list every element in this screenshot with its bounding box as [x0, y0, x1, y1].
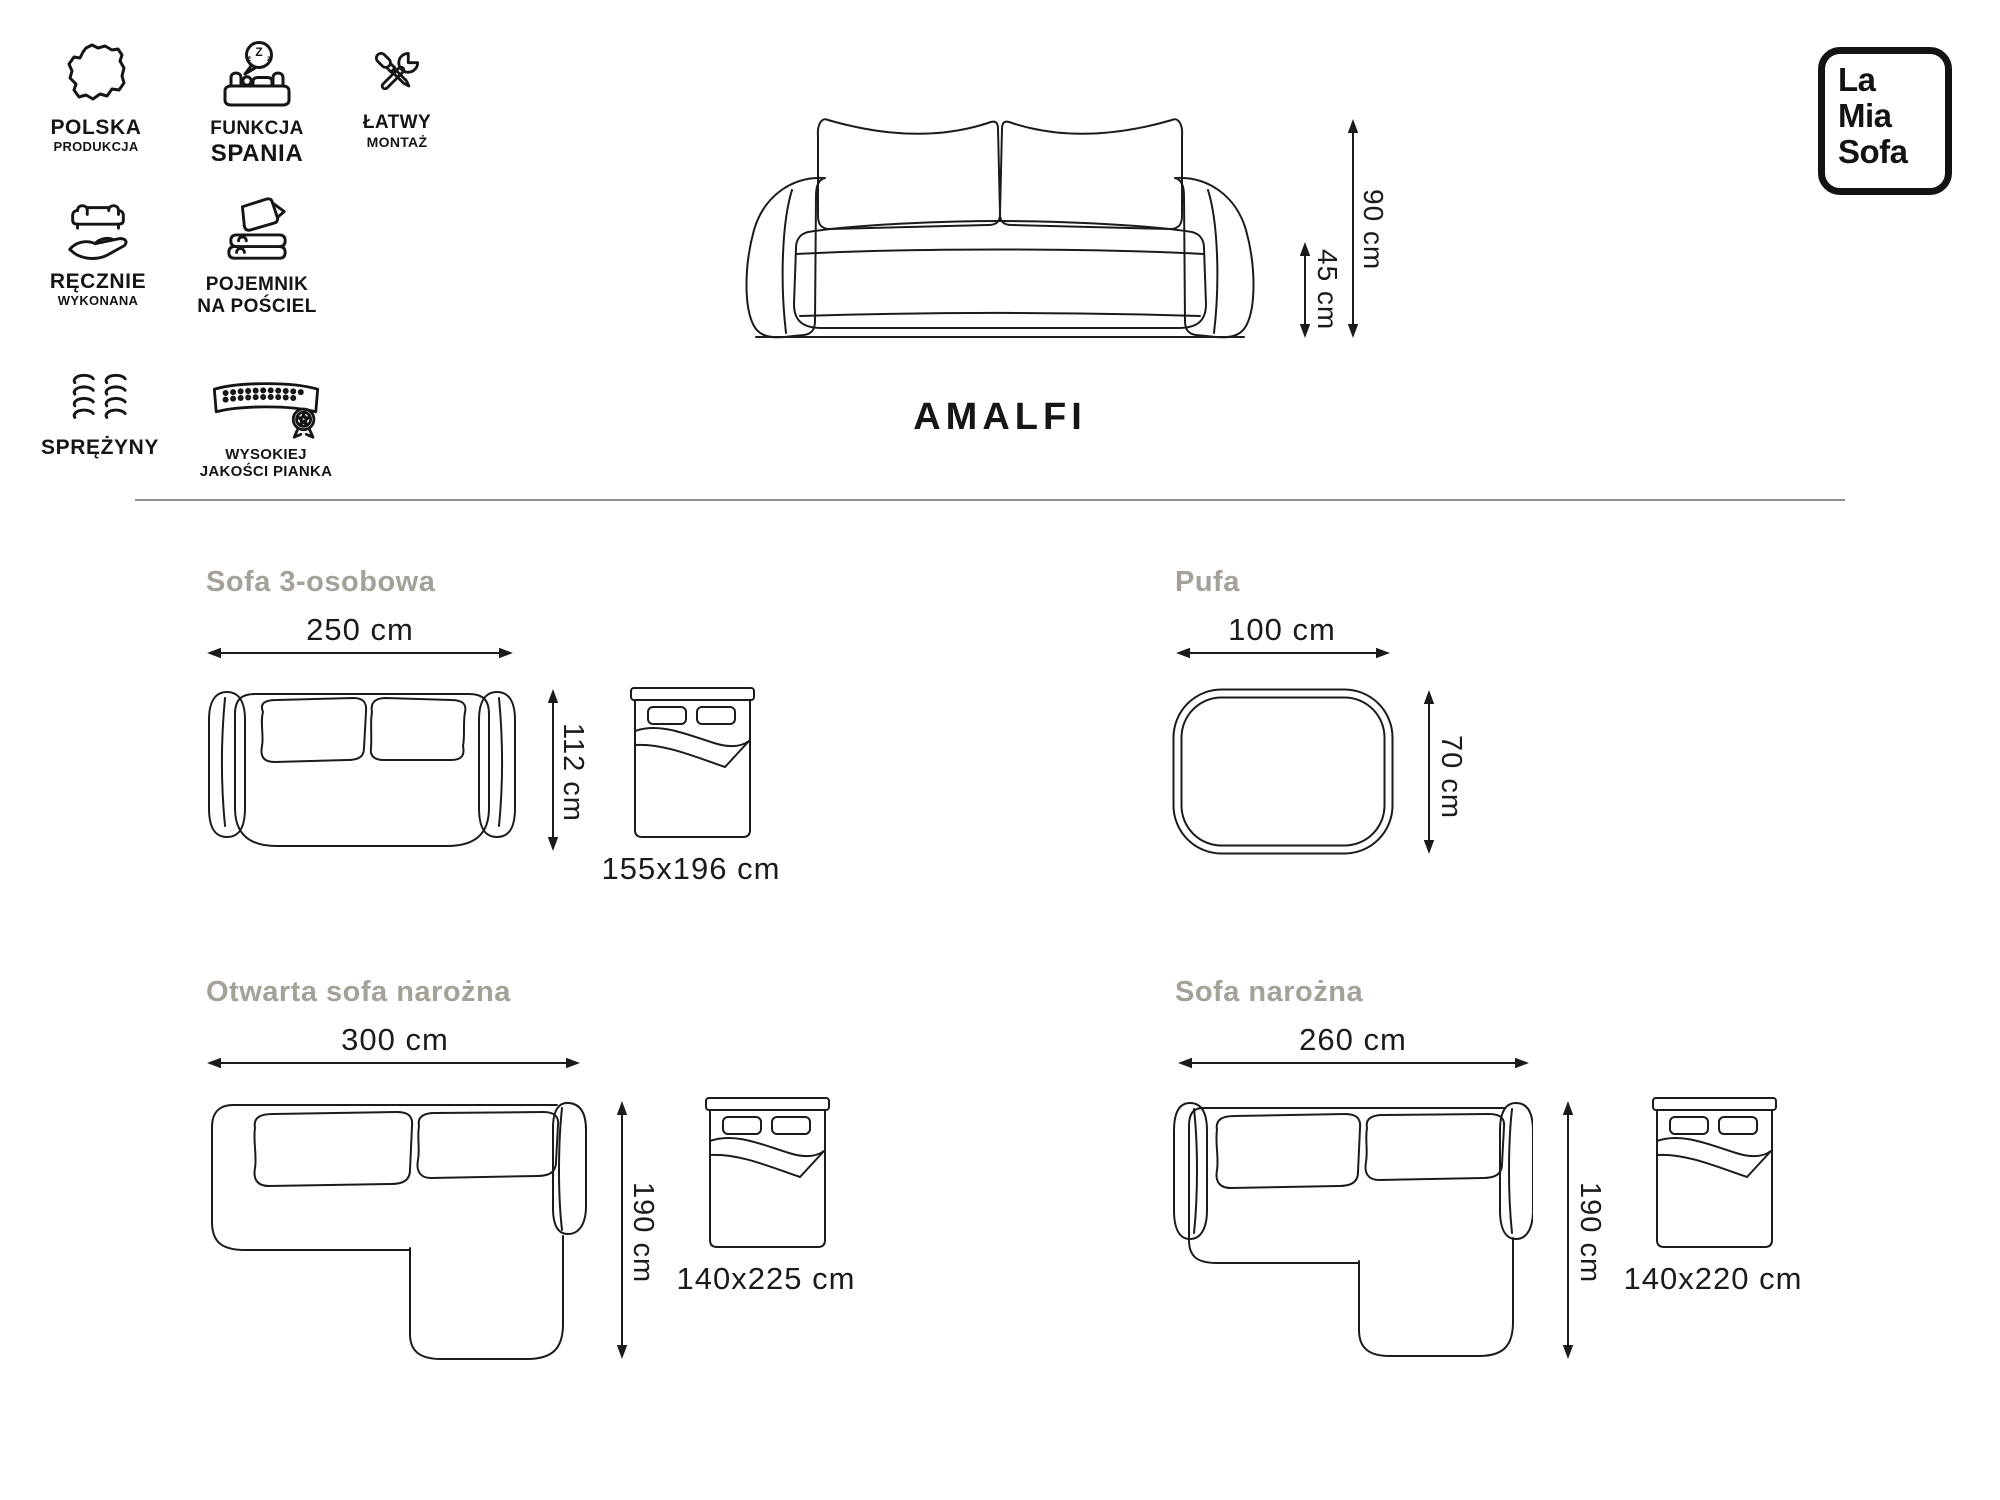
- width-label-sofa3: 250 cm: [260, 612, 460, 648]
- badge-polska-produkcja: POLSKA PRODUKCJA: [26, 42, 166, 155]
- badge-sprezyny: SPRĘŻYNY: [30, 372, 170, 460]
- badge-label: POJEMNIK: [187, 274, 327, 296]
- badge-funkcja-spania: Z z z FUNKCJA SPANIA: [187, 40, 327, 167]
- badge-label: WYSOKIEJ: [186, 446, 346, 463]
- badge-sublabel: PRODUKCJA: [26, 140, 166, 155]
- sleep-function-icon: Z z z: [221, 40, 293, 112]
- bed-icon: [1652, 1097, 1777, 1254]
- width-arrow-pufa: [1175, 645, 1391, 661]
- width-arrow-narozna: [1177, 1055, 1530, 1071]
- logo-line: Mia: [1838, 98, 1945, 134]
- brand-logo: La Mia Sofa: [1818, 47, 1952, 195]
- bed-size-label-sofa3: 155x196 cm: [591, 851, 791, 887]
- logo-line: La: [1838, 62, 1945, 98]
- depth-label-sofa3: 112 cm: [556, 723, 589, 822]
- section-title-pufa: Pufa: [1175, 566, 1240, 599]
- svg-text:Z: Z: [255, 45, 262, 59]
- seat-height-label: 45 cm: [1311, 249, 1343, 330]
- badge-label: FUNKCJA: [187, 118, 327, 140]
- divider-line: [135, 499, 1845, 501]
- badge-label: ŁATWY: [327, 112, 467, 134]
- bedding-storage-icon: [223, 196, 291, 268]
- springs-icon: [66, 372, 134, 430]
- badge-sublabel: WYKONANA: [28, 294, 168, 309]
- sofa-top-drawing: [205, 690, 519, 850]
- corner-sofa-open-drawing: [207, 1100, 587, 1362]
- svg-text:z: z: [247, 54, 251, 63]
- badge-latwy-montaz: ŁATWY MONTAŻ: [327, 42, 467, 150]
- section-title-otwarta: Otwarta sofa narożna: [206, 976, 511, 1009]
- width-arrow-otwarta: [206, 1055, 581, 1071]
- section-title-narozna: Sofa narożna: [1175, 976, 1363, 1009]
- badge-label: SPRĘŻYNY: [30, 436, 170, 460]
- spec-sheet: POLSKA PRODUKCJA Z z z FUNKCJA SPANIA: [0, 0, 2000, 1500]
- width-label-pufa: 100 cm: [1182, 612, 1382, 648]
- depth-label-otwarta: 190 cm: [626, 1182, 659, 1283]
- bed-size-label-otwarta: 140x225 cm: [666, 1261, 866, 1297]
- width-arrow-sofa3: [206, 645, 514, 661]
- badge-sublabel: MONTAŻ: [327, 134, 467, 150]
- product-title: AMALFI: [800, 396, 1200, 439]
- depth-label-narozna: 190 cm: [1573, 1182, 1606, 1283]
- corner-sofa-drawing: [1173, 1100, 1533, 1362]
- badge-label: RĘCZNIE: [28, 270, 168, 294]
- total-height-label: 90 cm: [1357, 189, 1389, 270]
- badge-label: POLSKA: [26, 116, 166, 140]
- badge-sublabel: SPANIA: [187, 140, 327, 168]
- svg-text:z: z: [267, 54, 271, 63]
- bed-size-label-narozna: 140x220 cm: [1613, 1261, 1813, 1297]
- tools-icon: [366, 42, 428, 106]
- handmade-icon: [60, 198, 136, 264]
- foam-quality-icon: [203, 378, 329, 440]
- section-title-sofa3: Sofa 3-osobowa: [206, 566, 435, 599]
- badge-sublabel: NA POŚCIEL: [187, 296, 327, 318]
- bed-icon: [630, 687, 755, 844]
- pouf-drawing: [1172, 688, 1394, 855]
- badge-sublabel: JAKOŚCI PIANKA: [186, 463, 346, 480]
- poland-map-icon: [65, 42, 127, 110]
- width-label-otwarta: 300 cm: [295, 1022, 495, 1058]
- bed-icon: [705, 1097, 830, 1254]
- width-label-narozna: 260 cm: [1253, 1022, 1453, 1058]
- logo-line: Sofa: [1838, 134, 1945, 170]
- sofa-front-drawing: [730, 112, 1270, 340]
- badge-pojemnik-na-posciel: POJEMNIK NA POŚCIEL: [187, 196, 327, 318]
- badge-wysokiej-jakosci-pianka: WYSOKIEJ JAKOŚCI PIANKA: [186, 378, 346, 481]
- badge-recznie-wykonana: RĘCZNIE WYKONANA: [28, 198, 168, 309]
- depth-label-pufa: 70 cm: [1434, 735, 1467, 819]
